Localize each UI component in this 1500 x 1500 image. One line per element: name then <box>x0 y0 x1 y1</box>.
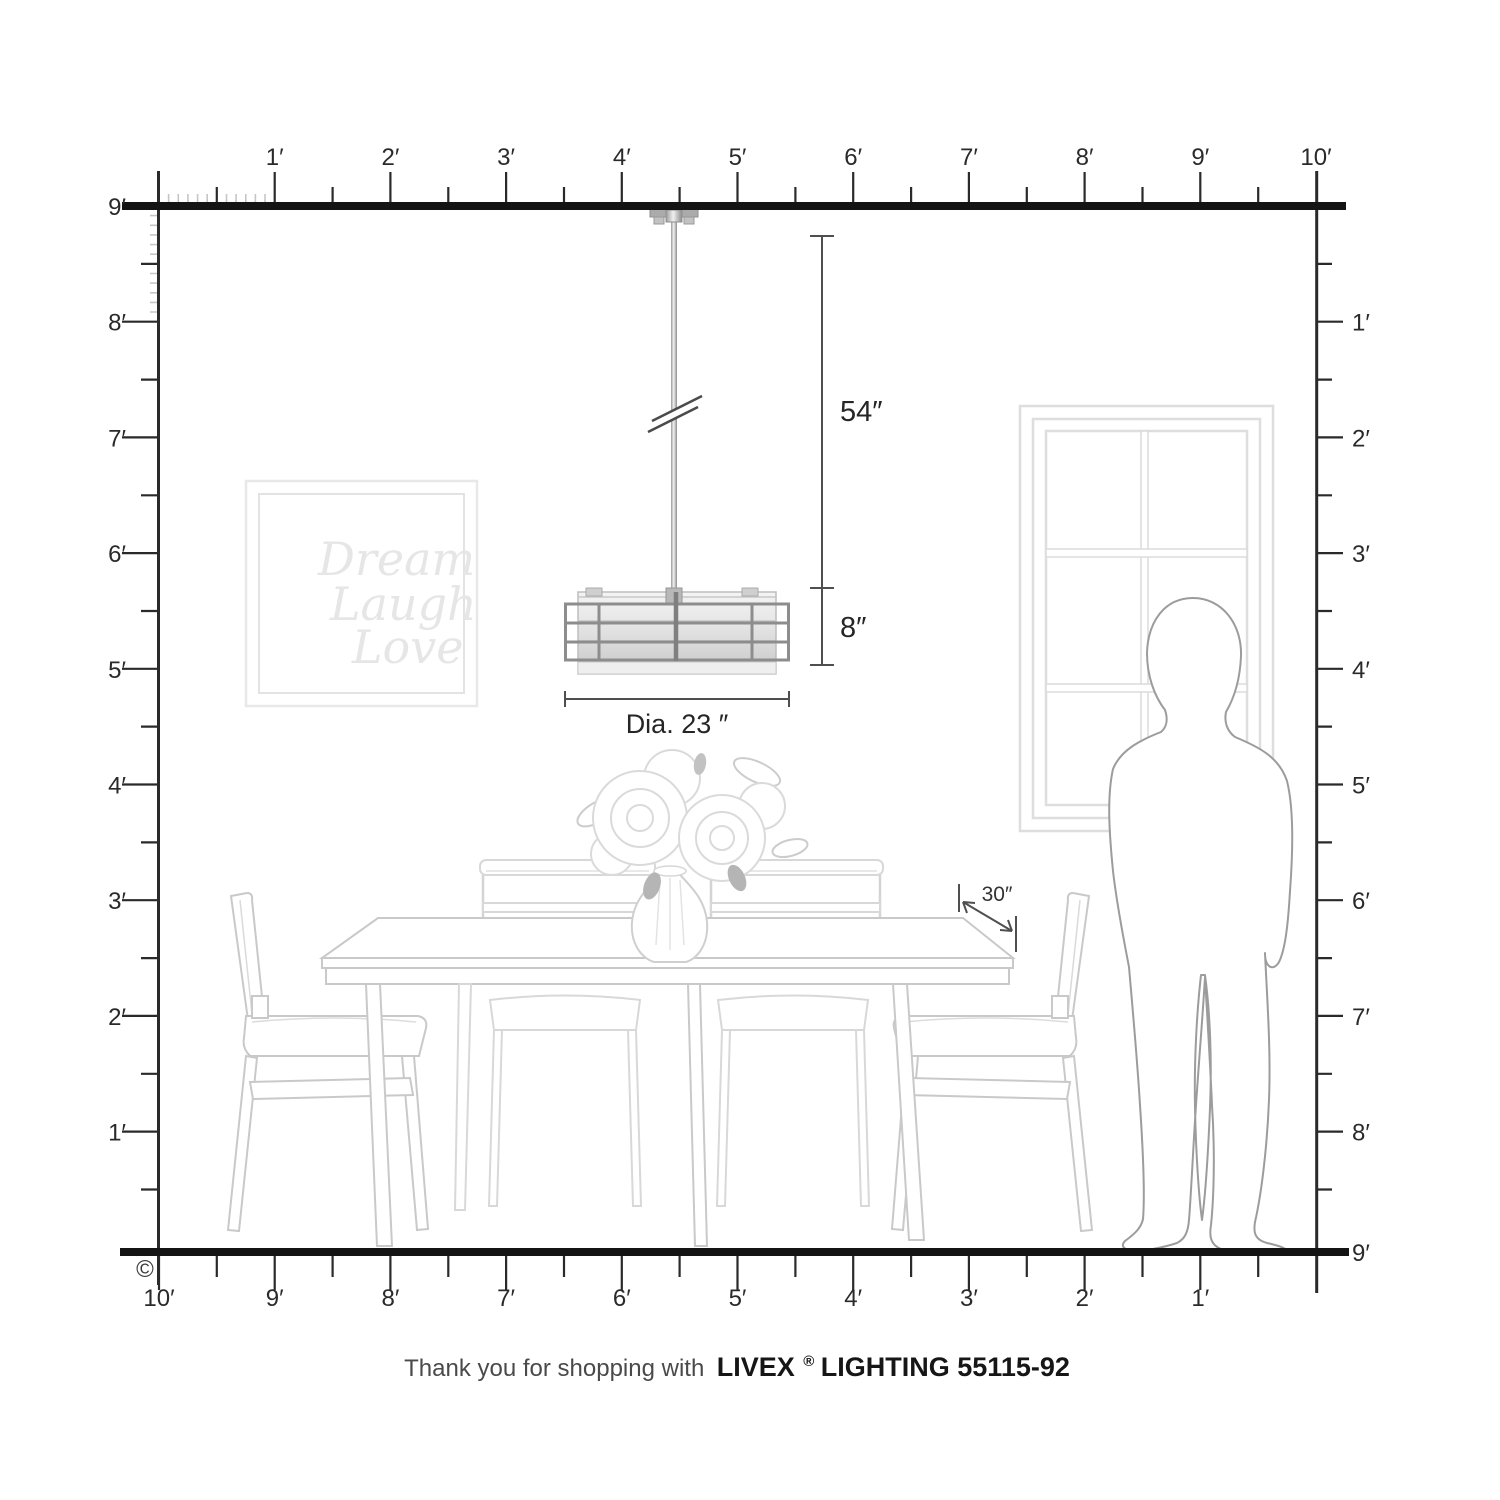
wall-art-frame: Dream Laugh Love <box>246 481 477 706</box>
top-ruler-label: 2′ <box>381 144 399 171</box>
bottom-ruler-label: 7′ <box>497 1285 515 1312</box>
left-ruler-label: 2′ <box>108 1004 126 1031</box>
diameter-dimension-line <box>565 691 789 707</box>
bottom-ruler-label: 6′ <box>613 1285 631 1312</box>
left-ruler-label: 3′ <box>108 888 126 915</box>
table-leg <box>455 984 471 1210</box>
top-ruler-label: 7′ <box>960 144 978 171</box>
copyright-icon: © <box>136 1256 154 1283</box>
table-depth-label: 30″ <box>982 883 1013 906</box>
dimension-diagram: Dream Laugh Love <box>0 0 1500 1500</box>
shade-height-label: 8″ <box>840 612 866 644</box>
pendant-fixture <box>564 209 790 674</box>
right-ruler-label: 3′ <box>1352 541 1370 568</box>
right-ruler-label: 6′ <box>1352 888 1370 915</box>
left-ruler-label: 5′ <box>108 657 126 684</box>
top-ruler-label: 3′ <box>497 144 515 171</box>
top-ruler-label: 1′ <box>266 144 284 171</box>
top-ruler-label: 5′ <box>729 144 747 171</box>
shade-clip <box>586 588 602 596</box>
window-muntin-horizontal-1 <box>1046 549 1247 557</box>
right-ruler-label: 9′ <box>1352 1240 1370 1267</box>
inch-tick-marks <box>150 194 265 312</box>
back-chair-right <box>708 860 883 1206</box>
bottom-ruler-label: 8′ <box>381 1285 399 1312</box>
right-ruler-label: 2′ <box>1352 425 1370 452</box>
top-ruler-label: 10′ <box>1300 144 1332 171</box>
caption-brand: LIVEX <box>717 1352 795 1382</box>
bottom-ruler-label: 1′ <box>1191 1285 1209 1312</box>
right-ruler-label: 7′ <box>1352 1004 1370 1031</box>
bottom-ruler-label: 4′ <box>844 1285 862 1312</box>
right-ruler-label: 5′ <box>1352 773 1370 800</box>
top-ruler-label: 4′ <box>613 144 631 171</box>
bottom-ruler-label: 10′ <box>143 1285 175 1312</box>
bottom-ruler-label: 2′ <box>1076 1285 1094 1312</box>
drop-length-label: 54″ <box>840 396 883 428</box>
caption-suffix: LIGHTING 55115-92 <box>821 1352 1070 1382</box>
right-ruler-label: 4′ <box>1352 657 1370 684</box>
flower-vase <box>632 866 707 962</box>
left-ruler-label: 7′ <box>108 425 126 452</box>
back-chair-left <box>480 860 655 1206</box>
floor-line <box>120 1248 1349 1256</box>
bottom-ruler-label: 5′ <box>729 1285 747 1312</box>
left-ruler-label: 8′ <box>108 310 126 337</box>
left-ruler-label: 1′ <box>108 1120 126 1147</box>
shade-clip <box>742 588 758 596</box>
top-ruler-label: 6′ <box>844 144 862 171</box>
left-ruler-label: 4′ <box>108 773 126 800</box>
left-ruler-label: 6′ <box>108 541 126 568</box>
flower-bouquet <box>573 750 809 902</box>
table-leg <box>688 984 707 1246</box>
drop-dimension-line <box>810 236 834 665</box>
left-ruler-label: 9′ <box>108 194 126 221</box>
top-ruler-label: 8′ <box>1076 144 1094 171</box>
right-ruler-label: 8′ <box>1352 1120 1370 1147</box>
art-word-love: Love <box>351 620 463 674</box>
person-silhouette <box>1109 598 1292 1253</box>
registered-mark-icon: ® <box>803 1353 814 1370</box>
caption-prefix: Thank you for shopping with <box>404 1355 704 1382</box>
diameter-label: Dia. 23 ″ <box>626 709 729 739</box>
diagram-canvas: Dream Laugh Love <box>0 0 1500 1500</box>
right-ruler-label: 1′ <box>1352 310 1370 337</box>
ceiling-line <box>122 202 1346 210</box>
top-ruler-label: 9′ <box>1191 144 1209 171</box>
footer-caption: Thank you for shopping with LIVEX ® LIGH… <box>404 1352 1070 1382</box>
bottom-ruler-label: 3′ <box>960 1285 978 1312</box>
bottom-ruler-label: 9′ <box>266 1285 284 1312</box>
